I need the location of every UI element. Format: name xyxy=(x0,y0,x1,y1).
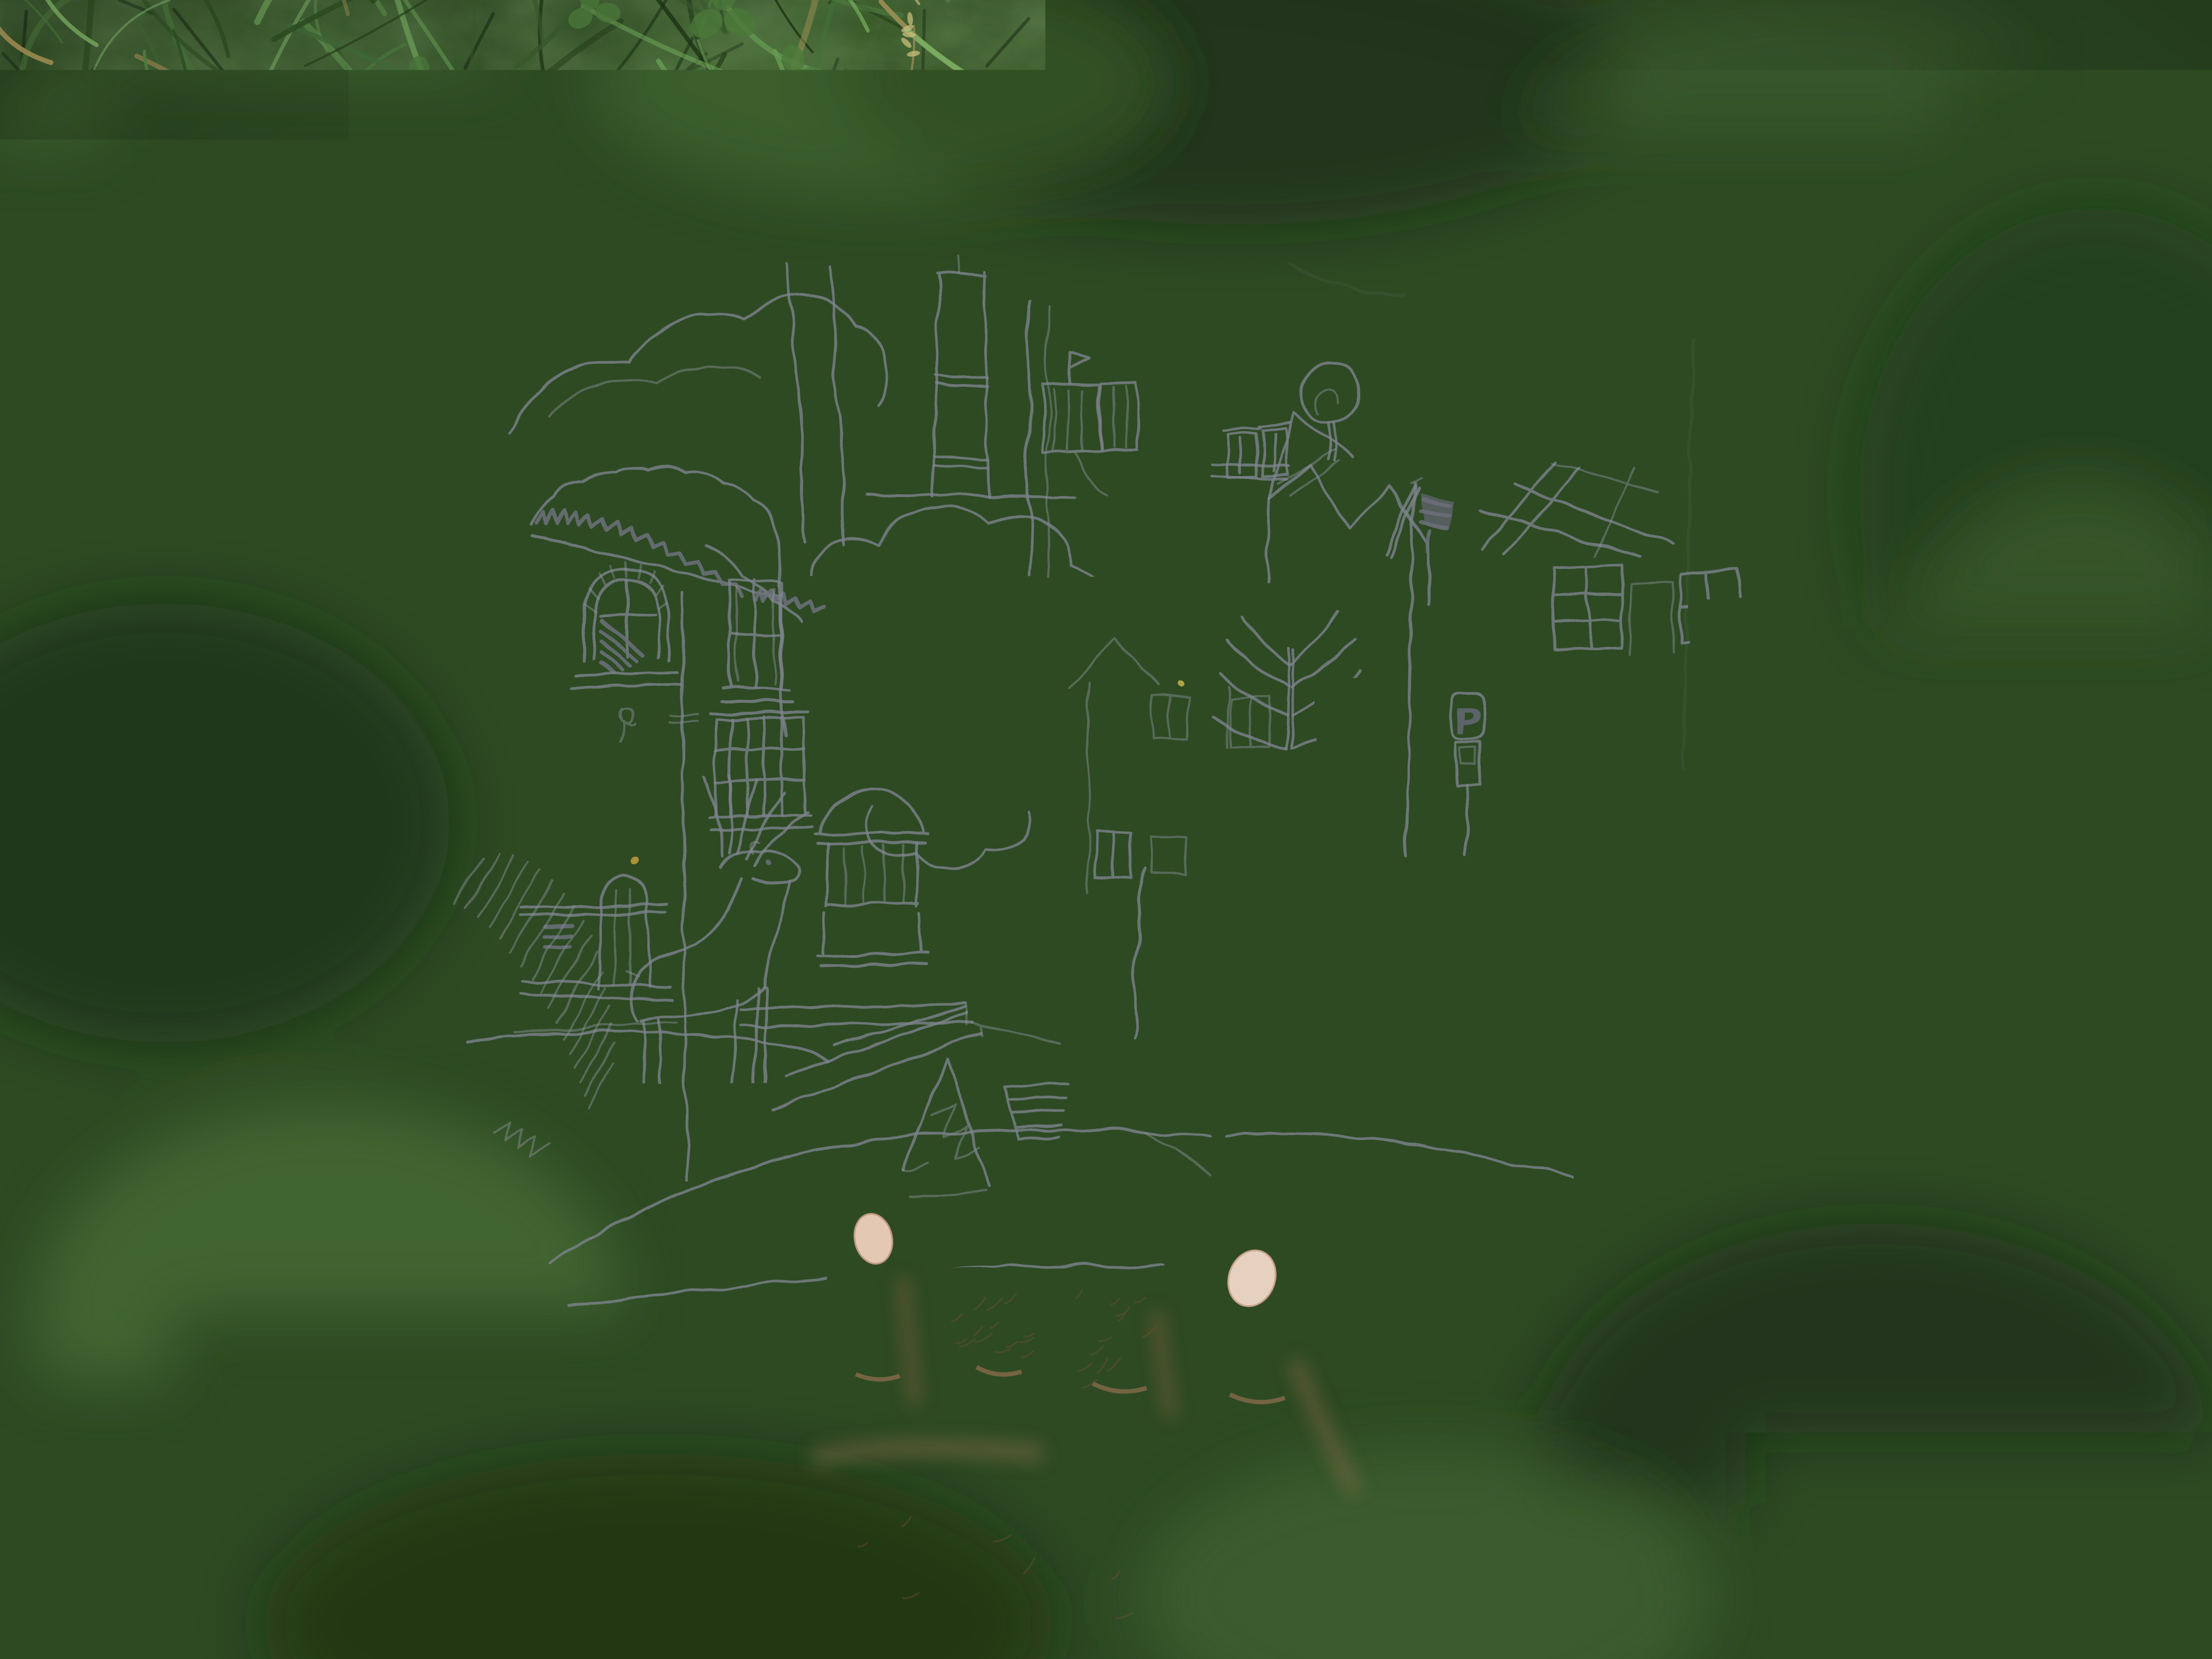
photo-canvas: P riefsvi xyxy=(0,0,2212,1659)
photo-sketchbook-on-grass: P riefsvi xyxy=(0,0,2212,1659)
photo-vignette xyxy=(0,0,2212,1659)
